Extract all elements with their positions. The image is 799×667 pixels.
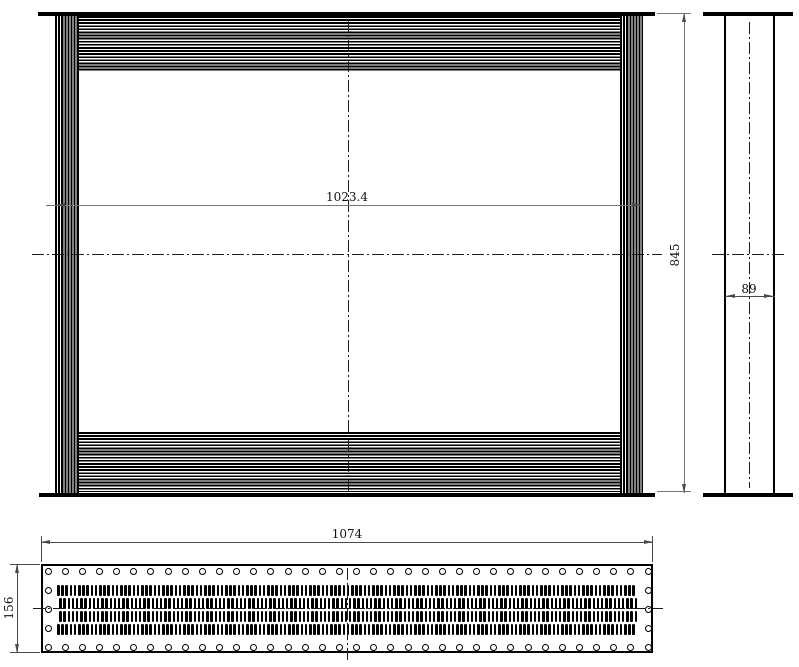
tube-slot (292, 585, 295, 596)
tube-slot (261, 611, 264, 622)
tube-slot (567, 611, 570, 622)
tube-slot (431, 624, 434, 635)
tube-slot (162, 585, 165, 596)
tube-slot (530, 611, 533, 622)
tube-slot (198, 611, 201, 622)
mounting-hole (62, 568, 69, 575)
tube-slot (86, 585, 89, 596)
tube-slot (506, 624, 509, 635)
tube-slot (513, 611, 516, 622)
tube-slot (632, 624, 635, 635)
tube-slot (372, 585, 375, 596)
tube-slot (542, 611, 545, 622)
tube-slot (574, 585, 577, 596)
tube-slot (401, 585, 404, 596)
tube-slot (305, 585, 308, 596)
tube-slot (189, 611, 192, 622)
tube-slot (406, 624, 409, 635)
tube-slot (254, 585, 257, 596)
tube-slot (269, 611, 272, 622)
tube-slot (603, 585, 606, 596)
tube-slot (599, 585, 602, 596)
tube-slot (607, 585, 610, 596)
tube-slot (120, 585, 123, 596)
tube-slot (590, 585, 593, 596)
tube-slot (460, 624, 463, 635)
tube-slot (315, 611, 318, 622)
tube-slot (551, 611, 554, 622)
tube-slot (250, 624, 253, 635)
mounting-hole (336, 568, 343, 575)
mounting-hole (79, 644, 86, 651)
tube-slot (103, 585, 106, 596)
side-depth-arrow-right (764, 294, 773, 298)
tube-slot (273, 611, 276, 622)
tube-slot (170, 624, 173, 635)
tube-slot (385, 585, 388, 596)
tube-slot (275, 585, 278, 596)
side-top-plate (703, 12, 793, 16)
mounting-hole (45, 606, 52, 613)
mounting-hole (627, 568, 634, 575)
front-width-arrow-right (632, 203, 641, 207)
tube-slot (624, 624, 627, 635)
mounting-hole (302, 568, 309, 575)
tube-slot (320, 611, 323, 622)
sheet-horizontal-centerline (33, 608, 663, 609)
tube-slot (338, 585, 341, 596)
tube-slot (521, 611, 524, 622)
mounting-hole (405, 644, 412, 651)
mounting-hole (610, 568, 617, 575)
tube-slot (70, 624, 73, 635)
tube-slot (208, 624, 211, 635)
mounting-hole (113, 644, 120, 651)
mounting-hole (216, 568, 223, 575)
tube-slot (317, 624, 320, 635)
tube-slot (380, 585, 383, 596)
mounting-hole (645, 606, 652, 613)
tube-slot (609, 611, 612, 622)
tube-slot (89, 611, 92, 622)
front-top-fin-band (56, 16, 643, 72)
tube-slot (628, 624, 631, 635)
tube-slot (632, 585, 635, 596)
mounting-hole (507, 568, 514, 575)
tube-slot (502, 624, 505, 635)
tube-slot (57, 624, 60, 635)
tube-slot (336, 611, 339, 622)
tube-slot (305, 624, 308, 635)
tube-slot (477, 624, 480, 635)
front-width-dimension-line (46, 205, 641, 206)
tube-slot (467, 611, 470, 622)
mounting-hole (593, 568, 600, 575)
tube-slot (448, 624, 451, 635)
mounting-hole (233, 644, 240, 651)
tube-slot (290, 611, 293, 622)
tube-slot (95, 624, 98, 635)
tube-slot (418, 585, 421, 596)
tube-slot (399, 611, 402, 622)
tube-slot (91, 624, 94, 635)
tube-slot (166, 585, 169, 596)
tube-slot (492, 611, 495, 622)
tube-slot (154, 585, 157, 596)
tube-slot (196, 624, 199, 635)
tube-slot (200, 585, 203, 596)
tube-slot (519, 624, 522, 635)
tube-slot (452, 585, 455, 596)
tube-slot (588, 611, 591, 622)
sheet-width-dimension-line (17, 564, 18, 653)
tube-slot (527, 585, 530, 596)
mounting-hole (96, 568, 103, 575)
tube-slot (532, 624, 535, 635)
side-vertical-centerline (749, 22, 750, 488)
tube-slot (294, 611, 297, 622)
tube-slot (278, 611, 281, 622)
tube-slot (429, 611, 432, 622)
front-width-dimension-label: 1023.4 (318, 191, 376, 204)
tube-slot (124, 624, 127, 635)
tube-slot (145, 585, 148, 596)
tube-slot (191, 585, 194, 596)
tube-slot (469, 624, 472, 635)
height-dimension-label: 845 (669, 240, 683, 270)
tube-slot (112, 585, 115, 596)
mounting-hole (490, 644, 497, 651)
tube-slot (494, 585, 497, 596)
tube-slot (229, 624, 232, 635)
side-depth-arrow-left (726, 294, 735, 298)
front-horizontal-centerline (32, 254, 662, 255)
tube-slot (259, 585, 262, 596)
mounting-hole (130, 568, 137, 575)
tube-slot (519, 585, 522, 596)
tube-slot (389, 585, 392, 596)
front-vertical-centerline (348, 20, 349, 492)
tube-slot (267, 624, 270, 635)
tube-slot (206, 611, 209, 622)
tube-slot (99, 585, 102, 596)
tube-slot (357, 611, 360, 622)
side-bottom-plate (703, 493, 793, 497)
tube-slot (540, 585, 543, 596)
tube-slot (515, 585, 518, 596)
tube-slot (511, 585, 514, 596)
tube-slot (229, 585, 232, 596)
tube-slot (561, 585, 564, 596)
tube-slot (504, 611, 507, 622)
tube-slot (116, 624, 119, 635)
tube-slot (215, 611, 218, 622)
mounting-hole (147, 644, 154, 651)
tube-slot (311, 611, 314, 622)
tube-slot (525, 611, 528, 622)
tube-slot (248, 611, 251, 622)
tube-slot (271, 624, 274, 635)
tube-slot (578, 624, 581, 635)
tube-slot (584, 611, 587, 622)
tube-slot (427, 624, 430, 635)
tube-slot (303, 611, 306, 622)
sheet-width-arrow-bottom (15, 644, 19, 653)
tube-slot (91, 585, 94, 596)
tube-slot (107, 624, 110, 635)
tube-slot (544, 624, 547, 635)
tube-slot (527, 624, 530, 635)
tube-slot (626, 611, 629, 622)
tube-slot (611, 585, 614, 596)
tube-slot (378, 611, 381, 622)
mounting-hole (439, 568, 446, 575)
tube-slot (225, 624, 228, 635)
tube-slot (164, 611, 167, 622)
tube-slot (313, 624, 316, 635)
tube-slot (362, 611, 365, 622)
mounting-hole (319, 568, 326, 575)
mounting-hole (216, 644, 223, 651)
tube-slot (166, 624, 169, 635)
tube-slot (422, 585, 425, 596)
tube-slot (183, 585, 186, 596)
tube-slot (393, 624, 396, 635)
tube-slot (536, 624, 539, 635)
mounting-hole (405, 568, 412, 575)
tube-slot (238, 585, 241, 596)
mounting-hole (456, 568, 463, 575)
tube-slot (431, 585, 434, 596)
mounting-hole (199, 568, 206, 575)
tube-slot (72, 611, 75, 622)
tube-slot (282, 611, 285, 622)
tube-slot (74, 624, 77, 635)
tube-slot (469, 585, 472, 596)
tube-slot (383, 611, 386, 622)
mounting-hole (147, 568, 154, 575)
tube-slot (565, 585, 568, 596)
tube-slot (548, 624, 551, 635)
mounting-hole (267, 644, 274, 651)
tube-slot (502, 585, 505, 596)
tube-slot (204, 624, 207, 635)
tube-slot (70, 585, 73, 596)
sheet-length-arrow-left (41, 540, 50, 544)
tube-slot (330, 585, 333, 596)
tube-slot (536, 585, 539, 596)
tube-slot (416, 611, 419, 622)
tube-slot (569, 585, 572, 596)
tube-slot (99, 624, 102, 635)
tube-slot (135, 611, 138, 622)
tube-slot (611, 624, 614, 635)
tube-slot (154, 624, 157, 635)
tube-slot (364, 624, 367, 635)
tube-slot (458, 611, 461, 622)
tube-slot (624, 585, 627, 596)
mounting-hole (559, 568, 566, 575)
tube-slot (462, 611, 465, 622)
tube-slot (296, 585, 299, 596)
front-bottom-plate (39, 493, 655, 497)
tube-slot (586, 624, 589, 635)
mounting-hole (645, 587, 652, 594)
side-horizontal-centerline (712, 254, 786, 255)
tube-slot (217, 624, 220, 635)
sheet-vertical-centerline (347, 568, 348, 662)
tube-slot (569, 624, 572, 635)
tube-slot (450, 611, 453, 622)
tube-slot (498, 624, 501, 635)
mounting-hole (96, 644, 103, 651)
tube-slot (635, 611, 638, 622)
mounting-hole (79, 568, 86, 575)
tube-slot (534, 611, 537, 622)
mounting-hole (542, 644, 549, 651)
tube-slot (404, 611, 407, 622)
tube-slot (414, 585, 417, 596)
tube-slot (133, 624, 136, 635)
sheet-width-arrow-top (15, 564, 19, 573)
front-width-arrow-left (56, 203, 65, 207)
tube-slot (372, 624, 375, 635)
tube-slot (355, 585, 358, 596)
tube-slot (368, 624, 371, 635)
mounting-hole (62, 644, 69, 651)
tube-slot (479, 611, 482, 622)
tube-slot (593, 611, 596, 622)
tube-slot (464, 585, 467, 596)
tube-slot (309, 585, 312, 596)
tube-slot (443, 624, 446, 635)
tube-slot (603, 624, 606, 635)
engineering-drawing-canvas: 1023.4 845 89 1074 (0, 0, 799, 667)
sheet-length-dimension-label: 1074 (320, 528, 374, 541)
tube-slot (219, 611, 222, 622)
tube-slot (364, 585, 367, 596)
tube-slot (225, 585, 228, 596)
tube-slot (246, 624, 249, 635)
tube-slot (191, 624, 194, 635)
tube-slot (544, 585, 547, 596)
tube-slot (452, 624, 455, 635)
tube-slot (595, 585, 598, 596)
tube-slot (149, 585, 152, 596)
tube-slot (368, 585, 371, 596)
tube-slot (628, 585, 631, 596)
tube-slot (299, 611, 302, 622)
tube-slot (494, 624, 497, 635)
tube-slot (410, 624, 413, 635)
tube-slot (374, 611, 377, 622)
tube-slot (210, 611, 213, 622)
tube-slot (128, 585, 131, 596)
mounting-hole (199, 644, 206, 651)
tube-slot (204, 585, 207, 596)
tube-slot (460, 585, 463, 596)
tube-slot (326, 585, 329, 596)
tube-slot (145, 624, 148, 635)
tube-slot (242, 585, 245, 596)
tube-slot (326, 624, 329, 635)
tube-slot (572, 611, 575, 622)
tube-slot (555, 611, 558, 622)
tube-slot (532, 585, 535, 596)
tube-slot (246, 585, 249, 596)
tube-slot (233, 624, 236, 635)
tube-slot (506, 585, 509, 596)
tube-slot (607, 624, 610, 635)
mounting-hole (645, 625, 652, 632)
tube-slot (107, 585, 110, 596)
mounting-hole (387, 568, 394, 575)
tube-slot (185, 611, 188, 622)
tube-slot (435, 624, 438, 635)
mounting-hole (302, 644, 309, 651)
tube-slot (196, 585, 199, 596)
mounting-hole (319, 644, 326, 651)
tube-slot (511, 624, 514, 635)
tube-slot (141, 585, 144, 596)
tube-slot (301, 585, 304, 596)
tube-slot (252, 611, 255, 622)
tube-slot (301, 624, 304, 635)
tube-slot (523, 585, 526, 596)
mounting-hole (627, 644, 634, 651)
height-dimension-line (684, 13, 685, 493)
tube-slot (485, 624, 488, 635)
tube-slot (330, 624, 333, 635)
mounting-hole (353, 644, 360, 651)
tube-slot (221, 624, 224, 635)
mounting-hole (45, 587, 52, 594)
tube-slot (485, 585, 488, 596)
tube-slot (322, 624, 325, 635)
mounting-hole (336, 644, 343, 651)
tube-slot (78, 585, 81, 596)
tube-slot (605, 611, 608, 622)
tube-slot (126, 611, 129, 622)
tube-slot (86, 624, 89, 635)
mounting-hole (473, 644, 480, 651)
tube-slot (618, 611, 621, 622)
tube-slot (208, 585, 211, 596)
mounting-hole (233, 568, 240, 575)
tube-slot (338, 624, 341, 635)
mounting-hole (507, 644, 514, 651)
tube-slot (183, 624, 186, 635)
tube-slot (397, 624, 400, 635)
tube-slot (143, 611, 146, 622)
mounting-hole (473, 568, 480, 575)
tube-slot (231, 611, 234, 622)
mounting-hole (353, 568, 360, 575)
mounting-hole (130, 644, 137, 651)
tube-slot (334, 585, 337, 596)
mounting-hole (370, 644, 377, 651)
tube-slot (233, 585, 236, 596)
tube-slot (80, 611, 83, 622)
tube-slot (131, 611, 134, 622)
tube-slot (435, 585, 438, 596)
tube-slot (343, 585, 346, 596)
mounting-hole (267, 568, 274, 575)
tube-slot (65, 624, 68, 635)
tube-slot (578, 585, 581, 596)
tube-slot (561, 624, 564, 635)
tube-slot (515, 624, 518, 635)
